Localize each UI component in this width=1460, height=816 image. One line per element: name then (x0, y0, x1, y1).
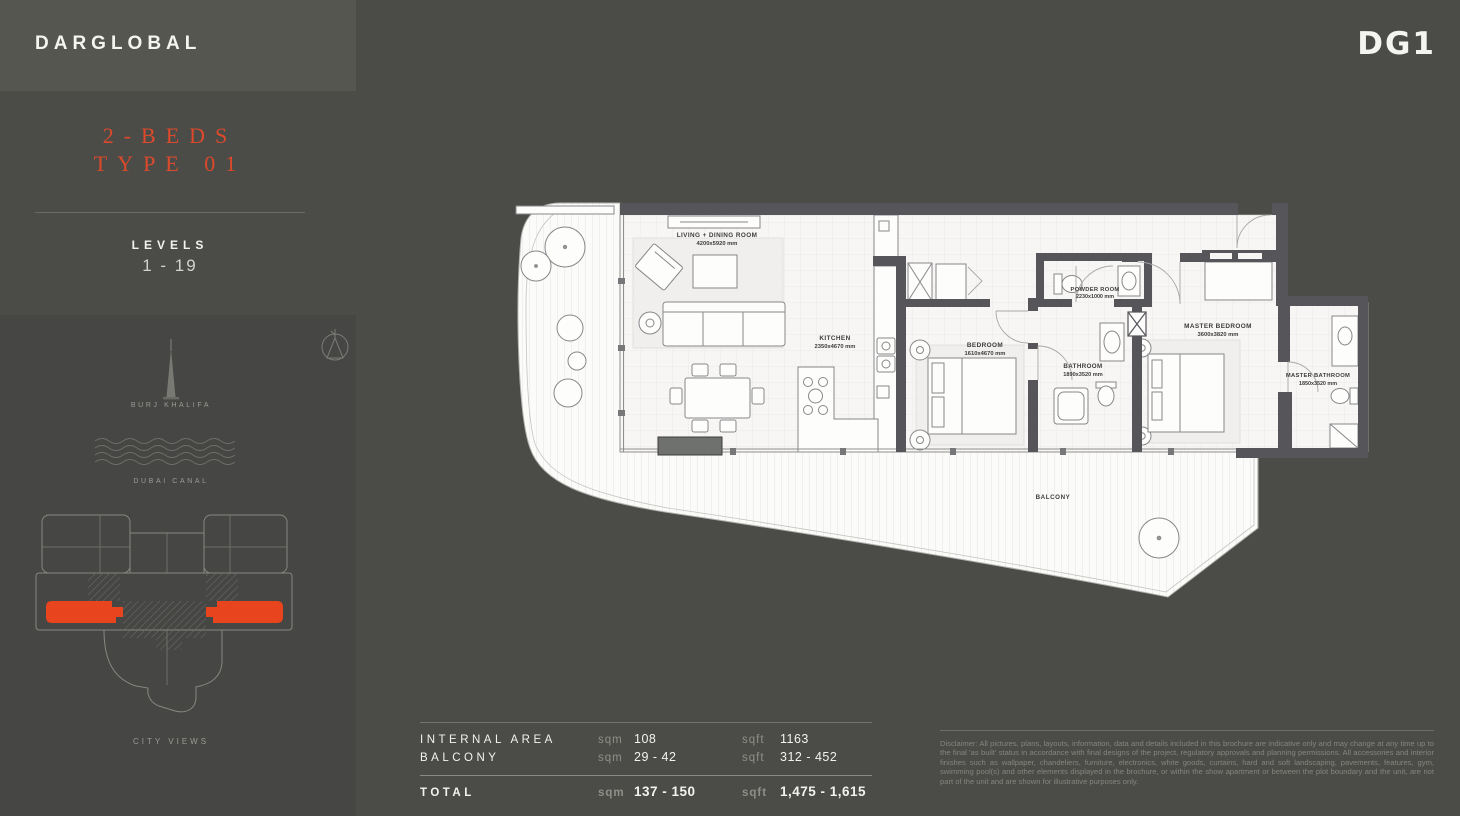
brochure-page: DARGLOBAL DG1 2-BEDS TYPE 01 LEVELS 1 - … (0, 0, 1460, 816)
total-sqft-value: 1,475 - 1,615 (780, 784, 872, 799)
wardrobe (1205, 262, 1272, 300)
room-dims: 3600x3820 mm (1198, 332, 1239, 338)
toilet (1054, 274, 1062, 294)
room-dims: 2350x4670 mm (815, 344, 856, 350)
unit-title: 2-BEDS TYPE 01 (0, 122, 340, 178)
lounge-chair (557, 315, 583, 341)
room-label: MASTER BATHROOM (1286, 373, 1350, 379)
locator-panel: BURJ KHALIFA DUBAI CANAL (0, 315, 356, 816)
sofa (663, 302, 785, 346)
room-label: BEDROOM (967, 342, 1003, 349)
dg1-logo: DG1 (1357, 26, 1436, 62)
lounge-chair (554, 379, 582, 407)
sqft-unit: sqft (742, 787, 780, 799)
levels-label: LEVELS (0, 238, 340, 252)
area-table: INTERNAL AREA sqm 108 sqft 1163 BALCONY … (420, 722, 872, 802)
planter-box (516, 206, 614, 214)
canal-waves-icon (95, 439, 235, 465)
room-dims: 1890x3520 mm (1063, 372, 1103, 378)
sqm-value: 29 - 42 (634, 750, 742, 764)
table-row: INTERNAL AREA sqm 108 sqft 1163 (420, 732, 872, 750)
sqm-unit: sqm (598, 787, 634, 799)
room-dims: 4200x5920 mm (697, 241, 738, 247)
sqm-value: 108 (634, 732, 742, 746)
sqft-unit: sqft (742, 734, 780, 746)
tv-cabinet (658, 437, 722, 455)
toilet (1350, 388, 1358, 404)
washer-unit (936, 264, 966, 300)
room-dims: 1850x3520 mm (1299, 381, 1337, 387)
disclaimer-text: Disclaimer: All pictures, plans, layouts… (940, 730, 1434, 787)
table-divider (420, 775, 872, 776)
row-label: BALCONY (420, 752, 598, 764)
levels-value: 1 - 19 (0, 256, 340, 276)
city-views-label: CITY VIEWS (133, 737, 209, 746)
total-label: TOTAL (420, 787, 598, 799)
darglobal-logo: DARGLOBAL (35, 33, 201, 55)
sqft-value: 1163 (780, 732, 872, 746)
room-dims: 2230x1000 mm (1076, 294, 1114, 300)
table-row: BALCONY sqm 29 - 42 sqft 312 - 452 (420, 750, 872, 768)
coffee-table (693, 255, 737, 288)
sqft-unit: sqft (742, 752, 780, 764)
unit-variant: TYPE 01 (0, 150, 340, 178)
floor-plan: LIVING + DINING ROOM 4200x5920 mm KITCHE… (480, 190, 1380, 615)
dining-chair (692, 364, 708, 376)
sqft-value: 312 - 452 (780, 750, 872, 764)
room-label: LIVING + DINING ROOM (677, 232, 758, 239)
keyplan-hatch (88, 573, 120, 601)
burj-khalifa-icon (163, 339, 179, 399)
balcony-label: BALCONY (1036, 494, 1071, 501)
side-table (568, 352, 586, 370)
sqm-unit: sqm (598, 734, 634, 746)
sqm-unit: sqm (598, 752, 634, 764)
room-dims: 1610x4670 mm (965, 351, 1006, 357)
sidebar-divider (35, 212, 305, 213)
highlighted-unit-right (206, 601, 283, 623)
dining-table (685, 378, 750, 418)
compass-icon (322, 329, 348, 360)
shaft (1128, 312, 1146, 336)
cooktop-burner (804, 378, 813, 387)
total-sqm-value: 137 - 150 (634, 784, 742, 799)
burj-khalifa-label: BURJ KHALIFA (131, 402, 211, 409)
locator-graphics: BURJ KHALIFA DUBAI CANAL (0, 315, 356, 816)
building-keyplan (36, 515, 292, 712)
unit-type: 2-BEDS (0, 122, 340, 150)
highlighted-unit-left (46, 601, 123, 623)
table-divider (420, 722, 872, 723)
room-label: KITCHEN (819, 335, 850, 342)
table-total-row: TOTAL sqm 137 - 150 sqft 1,475 - 1,615 (420, 784, 872, 802)
room-label: MASTER BEDROOM (1184, 323, 1252, 330)
dubai-canal-label: DUBAI CANAL (133, 478, 208, 485)
row-label: INTERNAL AREA (420, 734, 598, 746)
room-label: BATHROOM (1063, 363, 1102, 370)
room-label: POWDER ROOM (1070, 287, 1119, 293)
